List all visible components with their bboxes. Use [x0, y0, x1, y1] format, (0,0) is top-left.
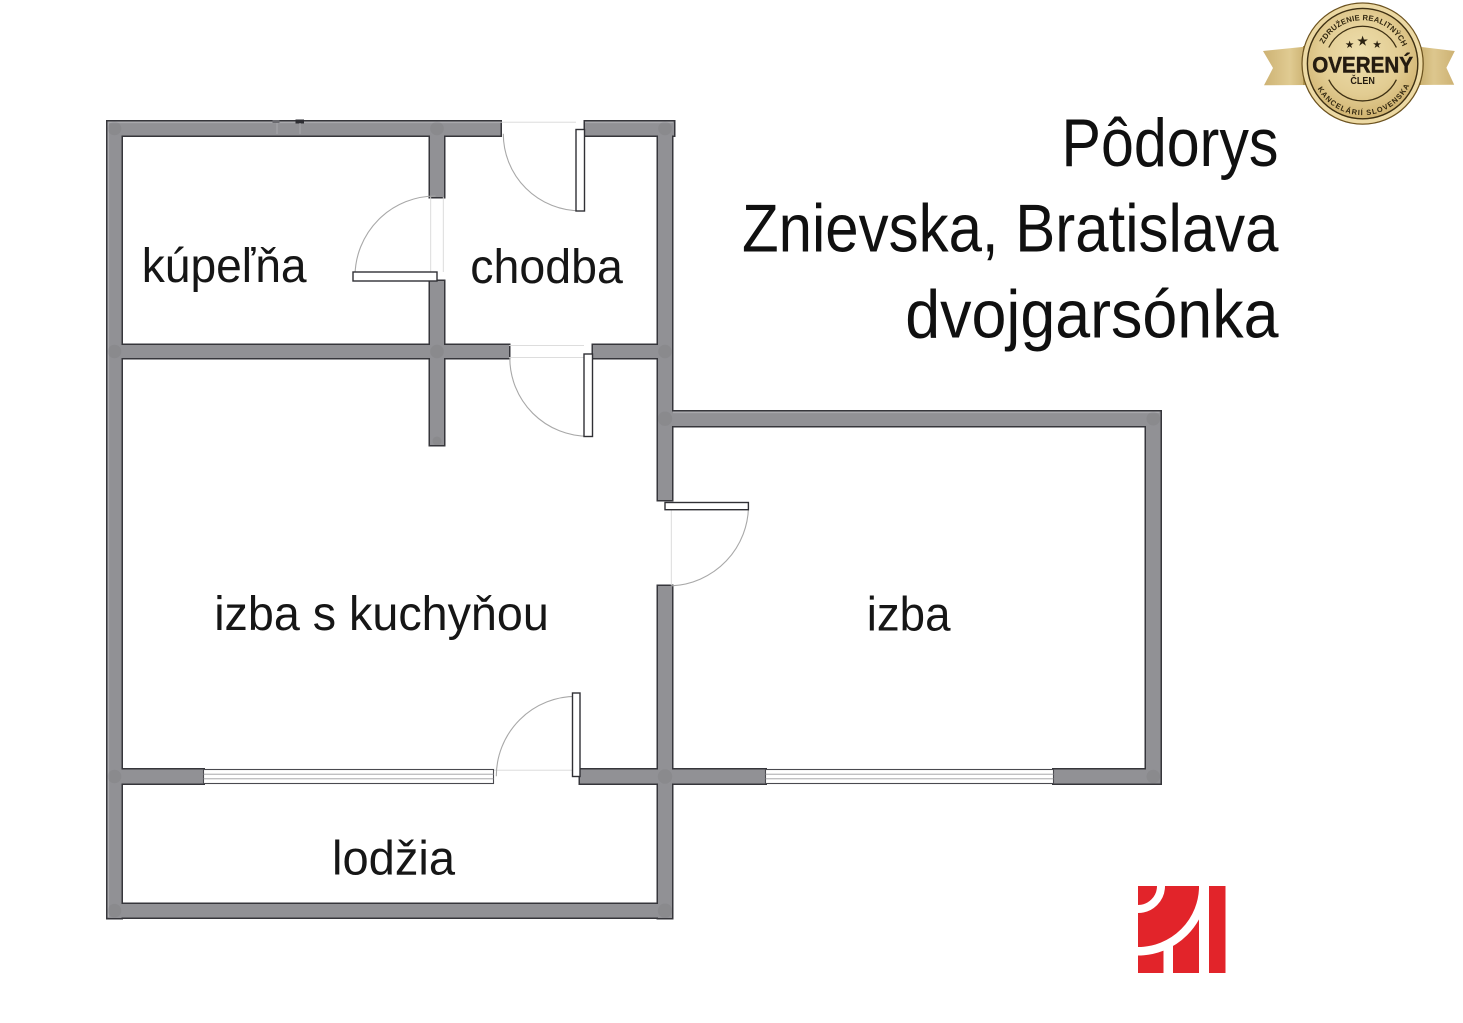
svg-text:izba s kuchyňou: izba s kuchyňou — [214, 588, 549, 641]
svg-text:kúpeľňa: kúpeľňa — [142, 240, 307, 293]
svg-text:OVERENÝ: OVERENÝ — [1312, 52, 1413, 77]
svg-text:ČLEN: ČLEN — [1350, 74, 1375, 87]
svg-text:dvojgarsónka: dvojgarsónka — [905, 276, 1278, 352]
svg-text:Znievska, Bratislava: Znievska, Bratislava — [742, 191, 1279, 267]
svg-text:lodžia: lodžia — [332, 833, 455, 886]
svg-text:Pôdorys: Pôdorys — [1062, 105, 1279, 181]
svg-text:chodba: chodba — [470, 241, 623, 294]
svg-text:izba: izba — [867, 589, 951, 642]
